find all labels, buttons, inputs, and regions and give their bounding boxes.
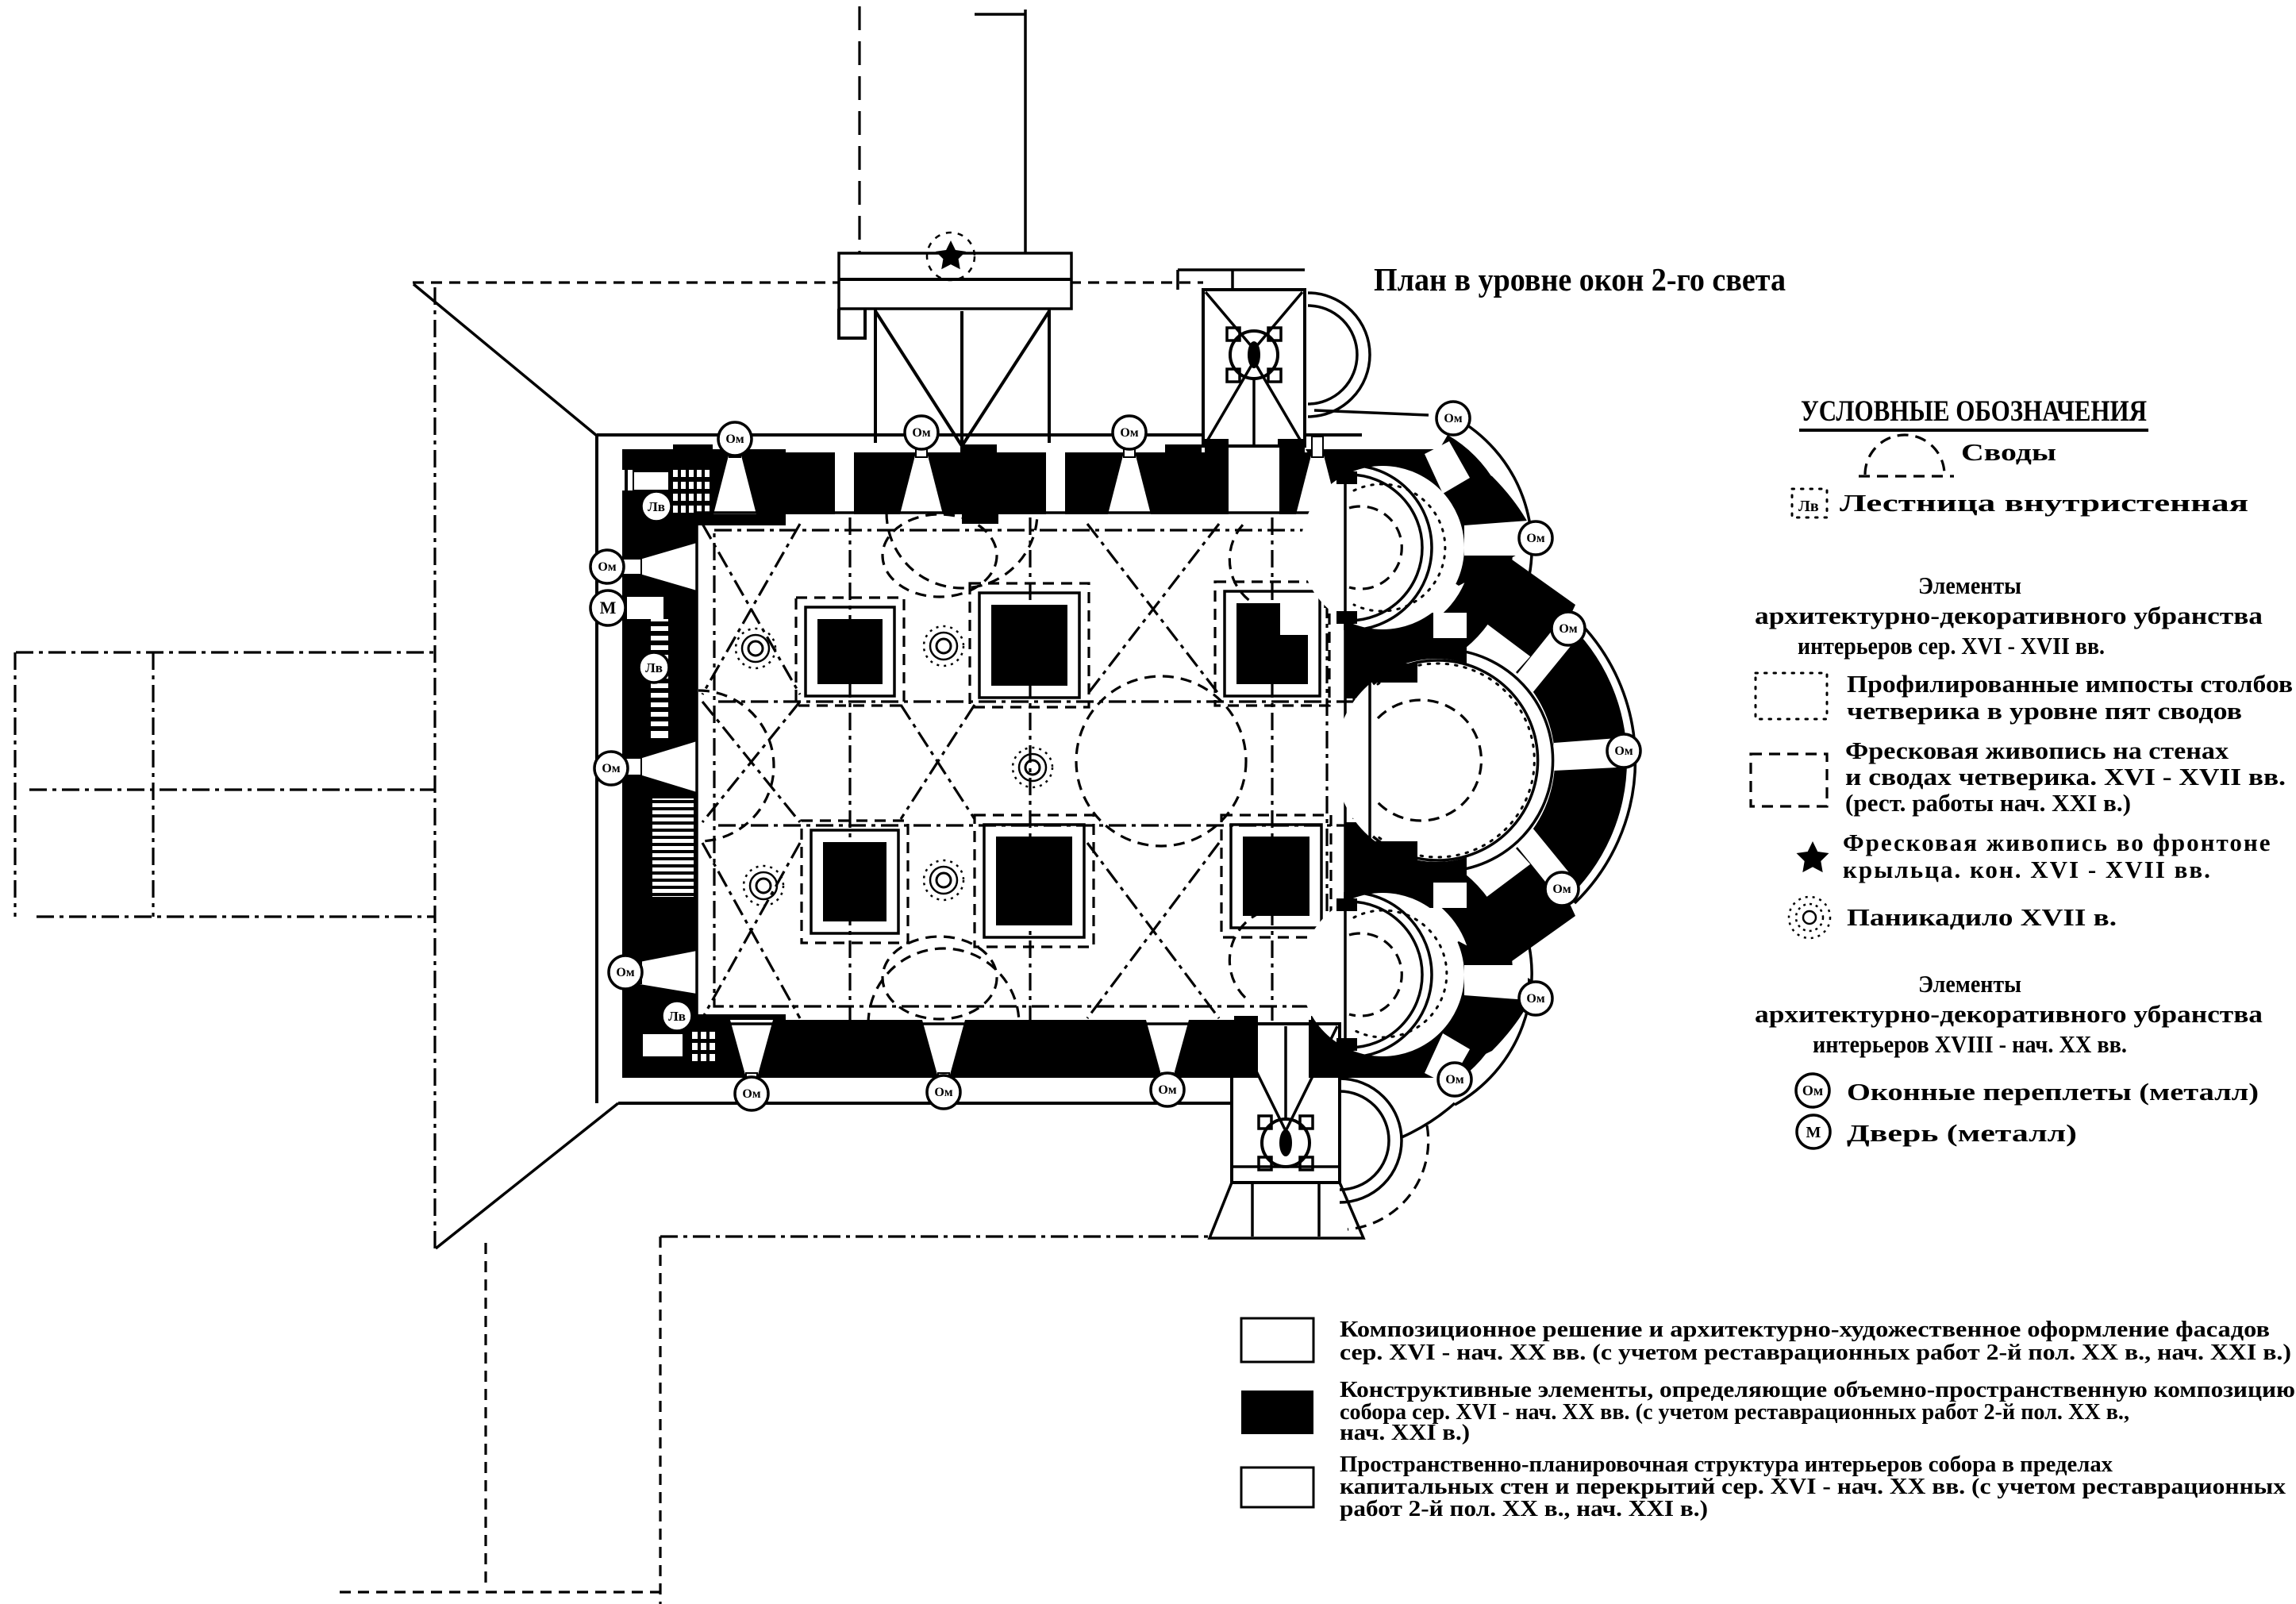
svg-text:нач. XXI в.): нач. XXI в.) <box>1340 1420 1470 1445</box>
svg-text:Ом: Ом <box>1526 532 1544 545</box>
svg-text:архитектурно-декоративного убр: архитектурно-декоративного убранства <box>1755 602 2263 629</box>
svg-text:Ом: Ом <box>934 1086 952 1099</box>
svg-text:Своды: Своды <box>1961 438 2056 466</box>
svg-text:четверика в уровне пят сводов: четверика в уровне пят сводов <box>1847 697 2242 725</box>
svg-text:архитектурно-декоративного убр: архитектурно-декоративного убранства <box>1755 1000 2263 1028</box>
svg-text:Ом: Ом <box>1559 622 1577 636</box>
svg-text:и сводах четверика. XVI - XVII: и сводах четверика. XVI - XVII вв. <box>1845 763 2286 790</box>
svg-text:Дверь (металл): Дверь (металл) <box>1847 1119 2077 1147</box>
svg-text:Лестница внутристенная: Лестница внутристенная <box>1840 489 2248 517</box>
svg-text:Ом: Ом <box>1444 412 1462 425</box>
svg-text:Ом: Ом <box>602 762 620 775</box>
svg-text:Лв: Лв <box>648 499 665 514</box>
svg-text:Фресковая живопись во фронтоне: Фресковая живопись во фронтоне <box>1843 829 2271 856</box>
svg-text:сер. XVI - нач. XX вв. (с учет: сер. XVI - нач. XX вв. (с учетом реставр… <box>1340 1340 2291 1365</box>
svg-text:Паникадило XVII в.: Паникадило XVII в. <box>1847 903 2117 931</box>
svg-text:(рест. работы нач. XXI в.): (рест. работы нач. XXI в.) <box>1845 789 2131 817</box>
svg-text:Ом: Ом <box>912 426 930 440</box>
svg-text:Лв: Лв <box>645 660 663 675</box>
svg-text:Ом: Ом <box>1614 744 1633 758</box>
svg-text:Ом: Ом <box>1445 1073 1463 1087</box>
svg-text:М: М <box>1806 1124 1821 1141</box>
svg-text:Ом: Ом <box>725 433 744 446</box>
svg-text:План в уровне окон 2-го света: План в уровне окон 2-го света <box>1374 261 1786 298</box>
svg-text:Ом: Ом <box>1552 883 1571 896</box>
svg-text:Элементы: Элементы <box>1918 970 2021 998</box>
svg-text:Лв: Лв <box>1798 498 1819 515</box>
svg-text:Ом: Ом <box>1120 426 1138 440</box>
svg-text:Элементы: Элементы <box>1918 571 2021 599</box>
svg-text:Ом: Ом <box>742 1087 760 1101</box>
svg-text:Оконные переплеты (металл): Оконные переплеты (металл) <box>1847 1078 2259 1106</box>
svg-text:Лв: Лв <box>668 1009 686 1024</box>
svg-text:М: М <box>600 598 617 617</box>
svg-text:Ом: Ом <box>616 966 634 979</box>
svg-text:Ом: Ом <box>1158 1083 1176 1097</box>
svg-text:УСЛОВНЫЕ ОБОЗНАЧЕНИЯ: УСЛОВНЫЕ ОБОЗНАЧЕНИЯ <box>1801 395 2147 428</box>
svg-text:Ом: Ом <box>1802 1083 1823 1098</box>
svg-text:Фресковая живопись на стенах: Фресковая живопись на стенах <box>1845 737 2229 764</box>
svg-text:Ом: Ом <box>598 560 616 574</box>
svg-text:Профилированные импосты столбо: Профилированные импосты столбов <box>1847 670 2293 698</box>
svg-text:крыльца. кон. XVI - XVII вв.: крыльца. кон. XVI - XVII вв. <box>1843 856 2212 883</box>
svg-text:Композиционное решение и архит: Композиционное решение и архитектурно-ху… <box>1340 1317 2270 1342</box>
svg-text:Ом: Ом <box>1526 992 1544 1006</box>
svg-text:интерьеров XVIII - нач. XX вв.: интерьеров XVIII - нач. XX вв. <box>1813 1030 2127 1058</box>
svg-text:интерьеров сер. XVI - XVII вв.: интерьеров сер. XVI - XVII вв. <box>1798 632 2105 660</box>
svg-text:работ 2-й пол. XX в., нач. XXI: работ 2-й пол. XX в., нач. XXI в.) <box>1340 1496 1708 1521</box>
